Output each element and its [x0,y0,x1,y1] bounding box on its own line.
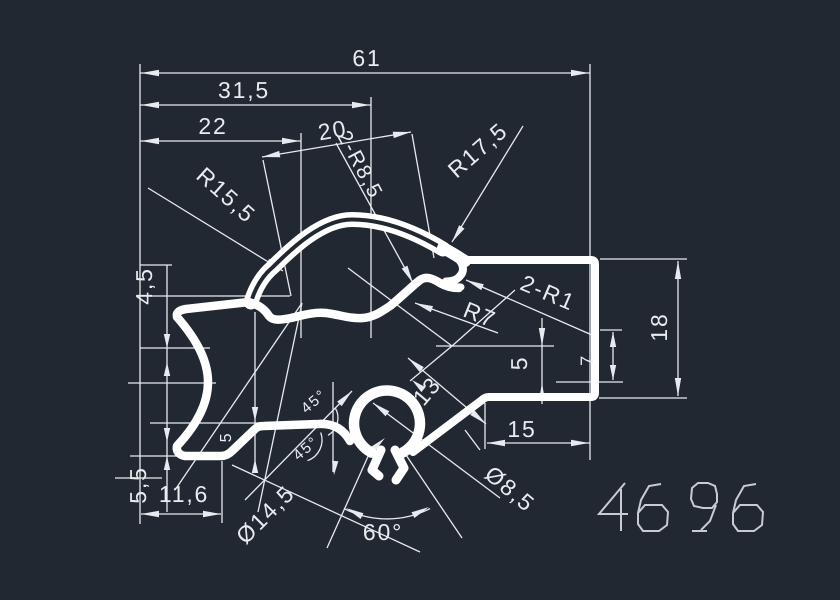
svg-text:45°: 45° [290,433,322,464]
svg-text:R17,5: R17,5 [443,117,513,183]
svg-text:15: 15 [507,416,536,442]
svg-text:22: 22 [198,113,227,139]
svg-text:Ø8,5: Ø8,5 [480,461,540,518]
svg-text:31,5: 31,5 [218,77,270,103]
svg-text:4,5: 4,5 [131,267,157,304]
svg-text:11,6: 11,6 [159,481,209,507]
svg-text:18: 18 [646,312,672,341]
svg-text:R15,5: R15,5 [192,162,262,228]
svg-text:5: 5 [506,356,532,371]
svg-text:2-R1: 2-R1 [517,270,580,316]
svg-text:5: 5 [218,432,235,443]
svg-text:5,5: 5,5 [125,466,151,503]
svg-text:61: 61 [352,45,381,71]
svg-text:7: 7 [577,354,597,366]
svg-text:2-R8,5: 2-R8,5 [332,127,387,203]
svg-text:60°: 60° [363,519,403,545]
svg-text:R7: R7 [460,296,500,332]
svg-text:45°: 45° [298,386,330,417]
svg-text:Ø14,5: Ø14,5 [231,480,300,549]
